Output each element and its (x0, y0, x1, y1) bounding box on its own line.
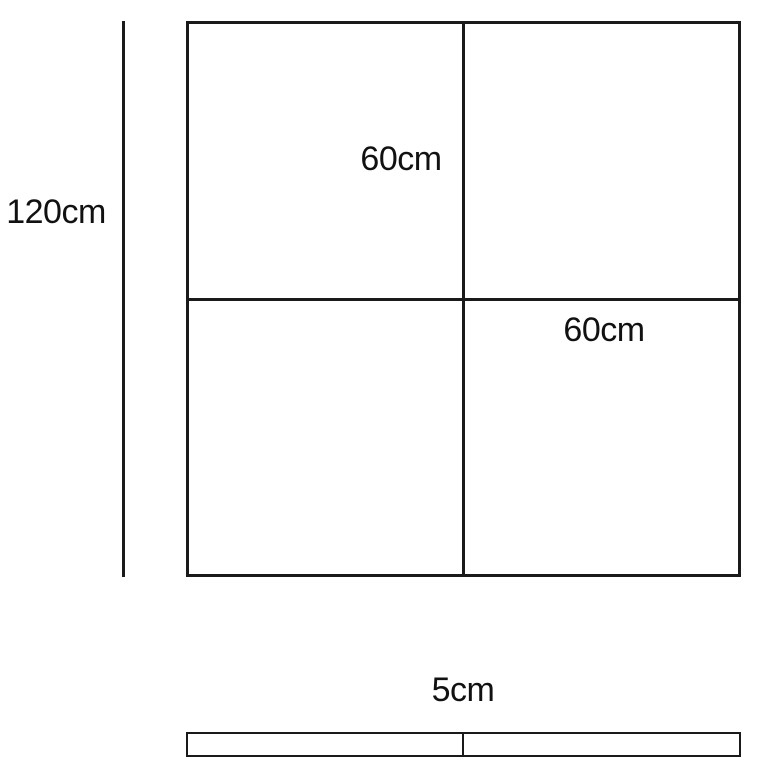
side-profile-divider-line (462, 734, 464, 755)
front-view-outline: 60cm 60cm (186, 21, 741, 577)
overall-height-label: 120cm (6, 195, 106, 229)
diagram-canvas: 120cm 60cm 60cm 5cm (0, 0, 760, 780)
height-dimension-line (122, 21, 125, 577)
horizontal-divider-line (189, 298, 738, 301)
depth-label: 5cm (432, 673, 495, 707)
upper-panel-height-label: 60cm (360, 142, 441, 176)
side-profile-bar (186, 732, 741, 757)
lower-panel-height-label: 60cm (563, 313, 644, 347)
